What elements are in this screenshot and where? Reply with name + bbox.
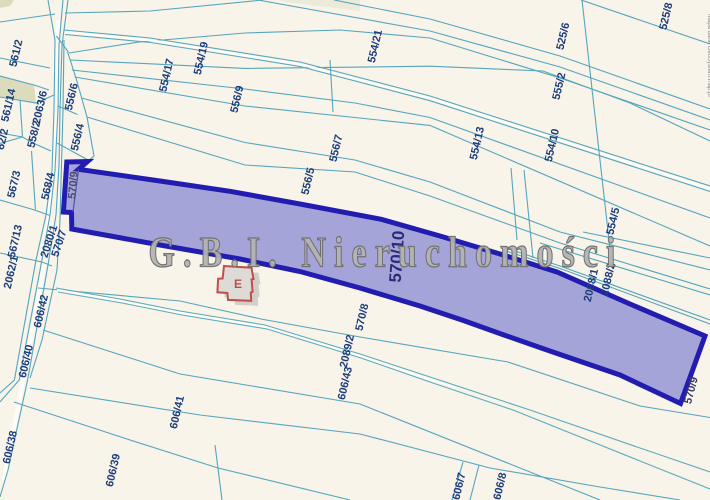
svg-text:Mapa dane GeoSystem.map.pl: Mapa dane GeoSystem.map.pl	[706, 14, 710, 97]
svg-text:G.B.I. Nieruchomości: G.B.I. Nieruchomości	[148, 229, 615, 277]
svg-text:E: E	[234, 277, 242, 291]
svg-text:570/9: 570/9	[66, 171, 80, 199]
